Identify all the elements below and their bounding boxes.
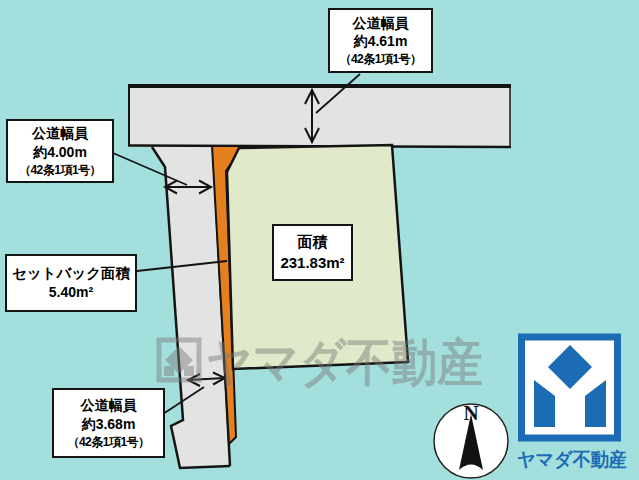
label-value: 約4.00m: [33, 143, 87, 162]
label-title: 公道幅員: [81, 396, 137, 415]
compass: N: [434, 401, 508, 478]
label-setback-area: セットバック面積 5.40m²: [5, 254, 137, 312]
brand-logo-text: ヤマダ不動産: [517, 449, 627, 470]
watermark-text: ヤマダ不動産: [206, 334, 483, 391]
label-title: 公道幅員: [353, 14, 409, 33]
label-value: 約3.68m: [82, 415, 136, 434]
label-title: 公道幅員: [32, 124, 88, 143]
label-note: （42条1項1号）: [339, 51, 421, 67]
label-value: 5.40m²: [49, 283, 93, 302]
brand-logo: ヤマダ不動産: [517, 337, 627, 470]
label-title: セットバック面積: [12, 264, 130, 284]
watermark: ヤマダ不動産: [159, 334, 483, 391]
label-note: （42条1項1号）: [67, 434, 149, 450]
label-value: 約4.61m: [354, 32, 408, 51]
road-top-shape: [128, 86, 511, 147]
label-value: 231.83m²: [280, 253, 344, 273]
site-plan-diagram: ヤマダ不動産 N ヤマダ不動産 公道幅員 約4.61m （42条1項1号） 公道…: [0, 0, 639, 480]
label-note: （42条1項1号）: [19, 162, 101, 178]
watermark-icon-part: [184, 366, 194, 376]
label-title: 面積: [298, 232, 328, 252]
label-road-top-width: 公道幅員 約4.61m （42条1項1号）: [328, 8, 433, 73]
label-plot-area: 面積 231.83m²: [272, 224, 353, 281]
label-road-left-width: 公道幅員 約4.00m （42条1項1号）: [6, 119, 114, 183]
watermark-icon-part: [164, 366, 174, 376]
label-road-bottom-width: 公道幅員 約3.68m （42条1項1号）: [52, 388, 165, 458]
